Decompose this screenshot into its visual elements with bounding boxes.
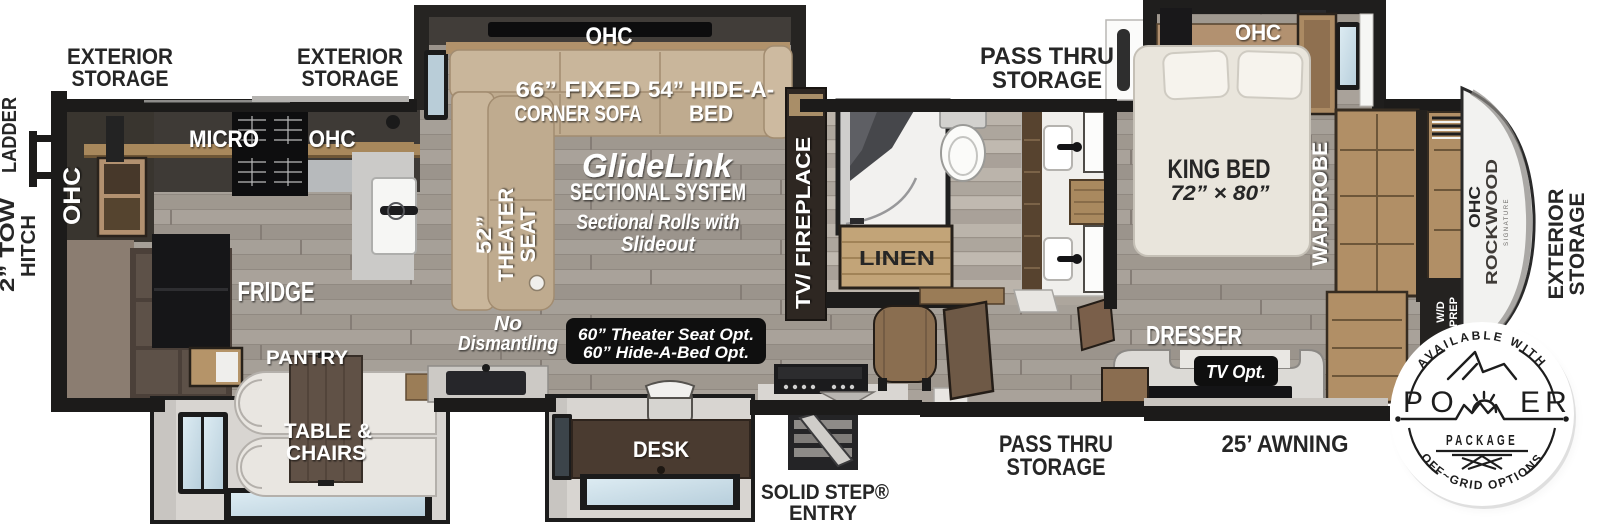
svg-text:LADDER: LADDER <box>0 97 21 173</box>
svg-text:STORAGE: STORAGE <box>1566 193 1589 296</box>
svg-text:ROCKWOOD: ROCKWOOD <box>1484 159 1501 285</box>
svg-text:THEATER: THEATER <box>495 188 518 282</box>
svg-text:TABLE &: TABLE & <box>284 420 372 443</box>
svg-text:CORNER SOFA: CORNER SOFA <box>515 101 642 126</box>
svg-text:BED: BED <box>689 101 733 126</box>
svg-text:PACKAGE: PACKAGE <box>1446 432 1518 449</box>
svg-text:ENTRY: ENTRY <box>789 502 857 525</box>
svg-text:OHC: OHC <box>1235 20 1281 45</box>
svg-text:TV Opt.: TV Opt. <box>1206 362 1266 382</box>
svg-text:54” HIDE-A-: 54” HIDE-A- <box>648 77 774 102</box>
svg-text:CHAIRS: CHAIRS <box>286 442 366 465</box>
svg-text:25’ AWNING: 25’ AWNING <box>1222 431 1349 458</box>
svg-text:R: R <box>1545 386 1567 419</box>
svg-text:EXTERIOR: EXTERIOR <box>1545 189 1568 300</box>
svg-text:STORAGE: STORAGE <box>992 67 1102 94</box>
svg-text:SECTIONAL SYSTEM: SECTIONAL SYSTEM <box>570 179 746 206</box>
svg-text:OHC: OHC <box>309 126 356 153</box>
svg-text:DRESSER: DRESSER <box>1146 320 1242 350</box>
svg-text:SOLID STEP®: SOLID STEP® <box>761 481 889 504</box>
svg-text:PANTRY: PANTRY <box>266 348 348 369</box>
svg-text:OHC: OHC <box>586 23 633 50</box>
svg-text:66” FIXED: 66” FIXED <box>516 77 641 102</box>
svg-text:PREP: PREP <box>1448 297 1460 327</box>
svg-text:TV/ FIREPLACE: TV/ FIREPLACE <box>793 137 815 309</box>
svg-text:Sectional Rolls with: Sectional Rolls with <box>577 211 740 234</box>
svg-text:W/D: W/D <box>1435 301 1447 322</box>
svg-text:KING BED: KING BED <box>1168 154 1271 184</box>
svg-text:No: No <box>494 313 522 335</box>
svg-text:STORAGE: STORAGE <box>72 66 169 91</box>
svg-text:OHC: OHC <box>59 167 86 225</box>
svg-text:OHC: OHC <box>1467 185 1484 228</box>
svg-text:FRIDGE: FRIDGE <box>238 276 315 307</box>
svg-text:SEAT: SEAT <box>517 207 540 262</box>
svg-text:72” × 80”: 72” × 80” <box>1171 182 1271 205</box>
svg-text:Slideout: Slideout <box>621 233 696 256</box>
svg-text:2” TOW: 2” TOW <box>0 198 19 292</box>
svg-text:O: O <box>1430 386 1453 419</box>
svg-text:DESK: DESK <box>633 437 689 462</box>
svg-text:LINEN: LINEN <box>859 248 935 270</box>
svg-text:HITCH: HITCH <box>18 215 40 277</box>
svg-text:60” Theater Seat Opt.: 60” Theater Seat Opt. <box>578 325 754 344</box>
svg-text:MICRO: MICRO <box>189 126 259 153</box>
svg-text:WARDROBE: WARDROBE <box>1309 142 1332 266</box>
svg-text:52”: 52” <box>473 216 496 254</box>
svg-text:Dismantling: Dismantling <box>458 333 558 355</box>
svg-text:PASS THRU: PASS THRU <box>980 43 1114 70</box>
svg-text:SIGNATURE: SIGNATURE <box>1504 198 1510 246</box>
svg-text:60” Hide-A-Bed Opt.: 60” Hide-A-Bed Opt. <box>583 343 749 362</box>
svg-text:P: P <box>1403 386 1423 419</box>
svg-text:STORAGE: STORAGE <box>1007 454 1106 481</box>
svg-text:STORAGE: STORAGE <box>302 66 399 91</box>
svg-text:E: E <box>1520 386 1540 419</box>
